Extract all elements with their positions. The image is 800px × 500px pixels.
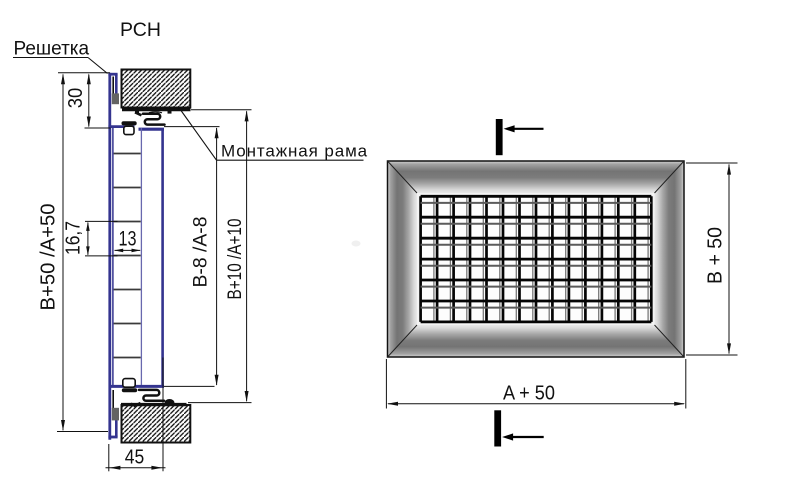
svg-text:13: 13 — [119, 228, 137, 251]
svg-text:30: 30 — [65, 88, 87, 109]
svg-text:Монтажная рама: Монтажная рама — [221, 142, 368, 161]
svg-text:16,7: 16,7 — [62, 221, 84, 255]
svg-text:A + 50: A + 50 — [503, 383, 555, 405]
svg-text:B+10 /A+10: B+10 /A+10 — [225, 219, 246, 300]
svg-text:B + 50: B + 50 — [704, 227, 726, 284]
svg-text:РСН: РСН — [120, 19, 161, 41]
svg-text:B+50 /A+50: B+50 /A+50 — [37, 204, 59, 311]
svg-text:Решетка: Решетка — [14, 39, 90, 60]
svg-text:B-8 /A-8: B-8 /A-8 — [190, 217, 212, 288]
svg-text:45: 45 — [125, 447, 145, 469]
